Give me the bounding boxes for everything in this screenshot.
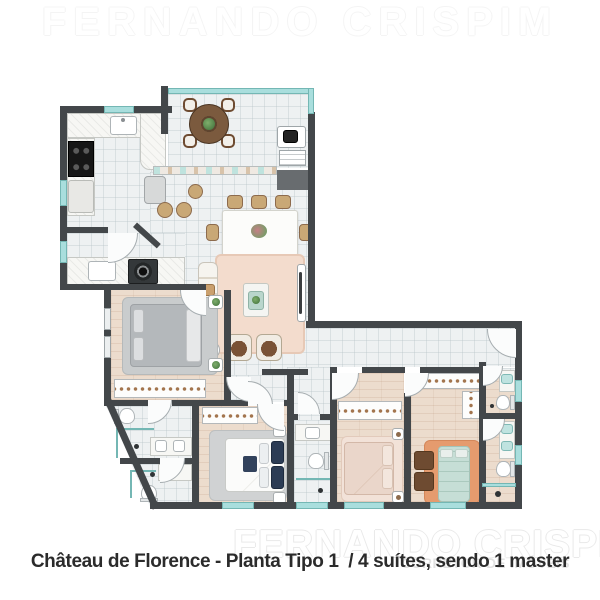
laundry-sink (88, 261, 116, 281)
bathroom-1-sink (173, 440, 185, 452)
suite-2-pillow (259, 443, 269, 464)
suite-3-pillow (382, 445, 393, 466)
door-swing (487, 329, 516, 358)
grill (283, 130, 298, 143)
table-plant (203, 118, 215, 130)
shower-drain (150, 472, 155, 477)
shower-drain (490, 404, 494, 408)
plan-caption: Château de Florence - Planta Tipo 1 / 4 … (0, 551, 600, 573)
suite-2-pillow (259, 467, 269, 488)
pass-through-counter (153, 166, 277, 175)
master-pillow (440, 449, 453, 458)
shower-drain (318, 488, 323, 493)
suite-2-wardrobe (202, 407, 258, 424)
cooktop (68, 141, 94, 177)
door-swing (483, 419, 505, 441)
window (60, 180, 67, 206)
master-bench (414, 451, 434, 470)
suite-2-throw (243, 456, 257, 472)
door-swing (248, 381, 273, 406)
window (430, 502, 466, 509)
bar-stool (176, 202, 192, 218)
coffee-table-plant (252, 296, 260, 304)
window (515, 380, 522, 402)
wall-segment (150, 502, 522, 509)
fridge (144, 176, 166, 204)
kitchen-faucet (121, 118, 125, 122)
window (296, 502, 328, 509)
master-bench (414, 472, 434, 491)
kitchen-cabinet (68, 180, 94, 213)
toilet (496, 461, 511, 477)
balcony-shelf (279, 150, 306, 166)
master-closet-row (422, 373, 480, 389)
bar-stool (157, 202, 173, 218)
suite-1-wardrobe (114, 379, 206, 398)
suite-1-throw (186, 309, 201, 362)
wall-segment (287, 373, 294, 420)
terrace-glass (482, 483, 516, 487)
toilet (308, 453, 324, 469)
dining-chair (275, 195, 291, 209)
door-swing (160, 458, 185, 483)
suite-1-pillow (133, 337, 144, 361)
dining-chair (251, 195, 267, 209)
balcony-railing-glass (308, 88, 314, 114)
dining-chair (227, 195, 243, 209)
door-swing (405, 373, 429, 397)
wall-segment (172, 400, 192, 406)
dining-chair (206, 224, 219, 241)
suite-3-pillow (382, 468, 393, 489)
bar-stool (188, 184, 203, 199)
window (104, 336, 111, 358)
window (515, 445, 522, 465)
door-swing (108, 233, 138, 263)
door-swing (332, 373, 359, 400)
master-pillow (455, 449, 468, 458)
wall-segment (306, 321, 522, 328)
balcony-railing-glass (168, 88, 314, 94)
wall-segment (161, 86, 168, 134)
tv (299, 272, 302, 314)
master-bath-sink (501, 441, 513, 451)
balcony-bench (277, 170, 308, 190)
door-swing (298, 392, 320, 414)
door-swing (257, 404, 284, 431)
suite-1-pillow (133, 309, 144, 333)
shower-drain (134, 444, 139, 449)
door-swing (483, 366, 503, 386)
wall-segment (60, 227, 108, 233)
master-closet-column (462, 391, 480, 419)
suite-2-navy-pillow (271, 441, 284, 464)
suite-2-navy-pillow (271, 466, 284, 489)
wall-segment (287, 420, 294, 503)
window (344, 502, 384, 509)
nightstand-plant (212, 298, 220, 306)
door-swing (180, 290, 206, 316)
watermark-top: FERNANDO CRISPIM (0, 0, 600, 45)
toilet-tank (324, 452, 329, 470)
bathroom-1-sink (155, 440, 167, 452)
wall-segment (420, 367, 480, 373)
terrace-drain (495, 491, 501, 497)
nightstand-plant (212, 361, 220, 369)
nightstand-lamp (396, 432, 401, 437)
armchair (256, 334, 282, 361)
window (104, 106, 134, 113)
window (104, 308, 111, 330)
window (222, 502, 254, 509)
wall-segment (60, 284, 190, 290)
window (60, 241, 67, 263)
wall-segment (60, 106, 67, 233)
floor-plan (0, 0, 600, 600)
suite-2-bath-sink (305, 427, 320, 439)
nightstand-lamp (396, 495, 401, 500)
wall-segment (308, 112, 315, 328)
wall-segment (362, 367, 405, 373)
wall-segment (287, 414, 298, 420)
toilet (496, 395, 510, 410)
wall-segment (404, 393, 411, 503)
shower-glass (296, 478, 332, 480)
wall-segment (262, 369, 308, 375)
table-flowers (251, 224, 267, 238)
wall-segment (192, 400, 199, 503)
suite-3-wardrobe (338, 401, 402, 420)
door-swing (148, 400, 172, 424)
shower-glass (130, 470, 132, 498)
